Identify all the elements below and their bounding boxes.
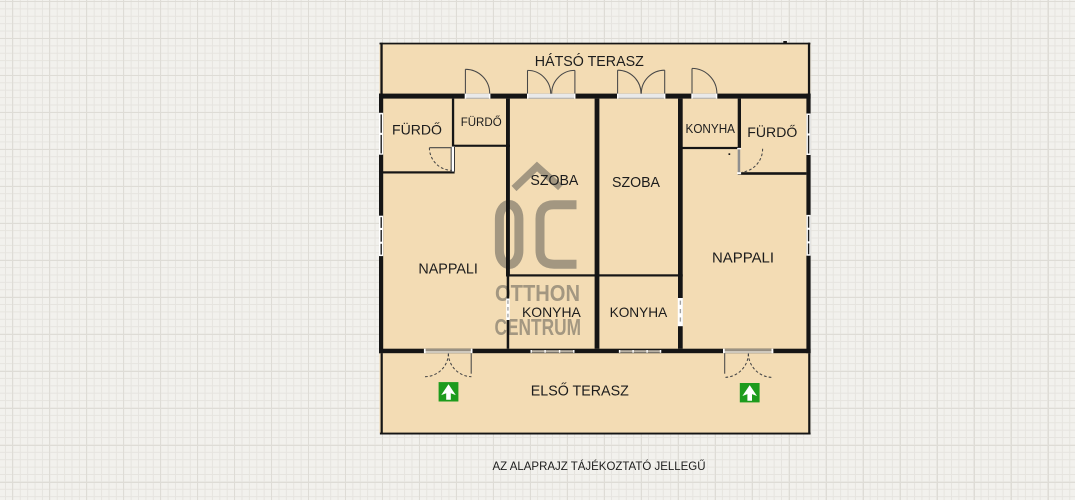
svg-text:NAPPALI: NAPPALI <box>418 261 478 278</box>
svg-text:ELSŐ TERASZ: ELSŐ TERASZ <box>531 382 629 399</box>
svg-text:FÜRDŐ: FÜRDŐ <box>461 114 502 129</box>
svg-text:SZOBA: SZOBA <box>530 172 578 189</box>
svg-text:SZOBA: SZOBA <box>612 174 660 191</box>
svg-text:KONYHA: KONYHA <box>522 304 581 320</box>
svg-text:FÜRDŐ: FÜRDŐ <box>747 123 797 140</box>
svg-text:AZ ALAPRAJZ TÁJÉKOZTATÓ JELLEG: AZ ALAPRAJZ TÁJÉKOZTATÓ JELLEGŰ <box>493 458 706 473</box>
svg-text:KONYHA: KONYHA <box>610 304 668 320</box>
svg-text:KONYHA: KONYHA <box>686 121 736 136</box>
svg-text:HÁTSÓ TERASZ: HÁTSÓ TERASZ <box>535 53 644 70</box>
svg-text:NAPPALI: NAPPALI <box>712 249 774 266</box>
svg-text:FÜRDŐ: FÜRDŐ <box>392 121 442 138</box>
